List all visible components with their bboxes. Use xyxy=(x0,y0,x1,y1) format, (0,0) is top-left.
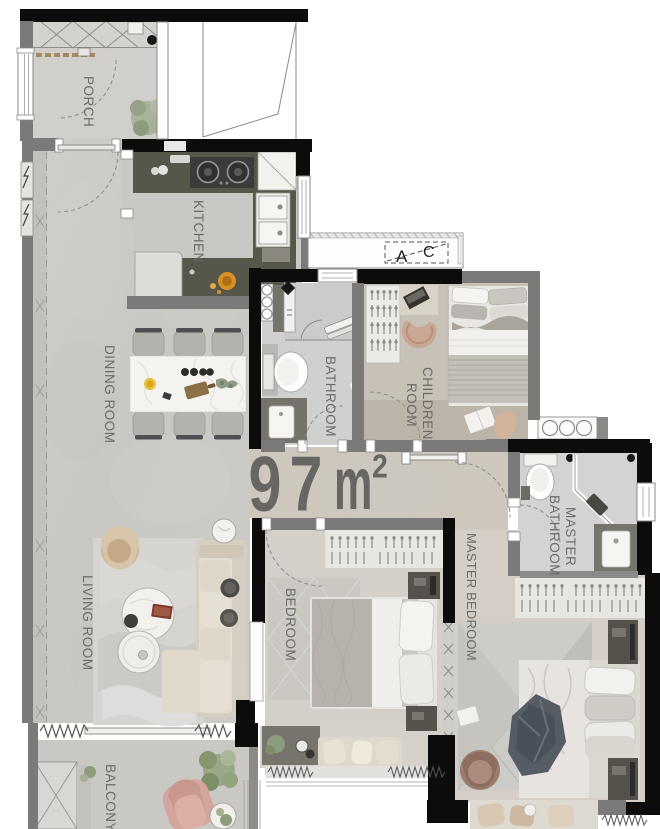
svg-text:MASTER BEDROOM: MASTER BEDROOM xyxy=(464,533,479,661)
svg-text:BATHROOM: BATHROOM xyxy=(323,356,338,437)
svg-text:PORCH: PORCH xyxy=(81,76,96,127)
svg-text:2: 2 xyxy=(372,447,388,485)
svg-text:ROOM: ROOM xyxy=(404,383,419,427)
svg-text:KITCHEN: KITCHEN xyxy=(191,200,206,263)
svg-text:7: 7 xyxy=(290,439,323,527)
svg-text:LIVING ROOM: LIVING ROOM xyxy=(80,575,95,671)
svg-text:MASTER: MASTER xyxy=(563,507,578,566)
svg-text:BALCONY: BALCONY xyxy=(103,764,118,829)
svg-text:CHILDREN: CHILDREN xyxy=(420,367,435,440)
svg-text:9: 9 xyxy=(249,439,282,527)
svg-text:m: m xyxy=(334,442,372,525)
svg-text:BEDROOM: BEDROOM xyxy=(283,588,298,661)
svg-text:BATHROOM: BATHROOM xyxy=(547,495,562,576)
svg-text:DINING ROOM: DINING ROOM xyxy=(102,345,117,444)
svg-text:C: C xyxy=(423,244,435,261)
svg-text:A: A xyxy=(396,247,408,266)
